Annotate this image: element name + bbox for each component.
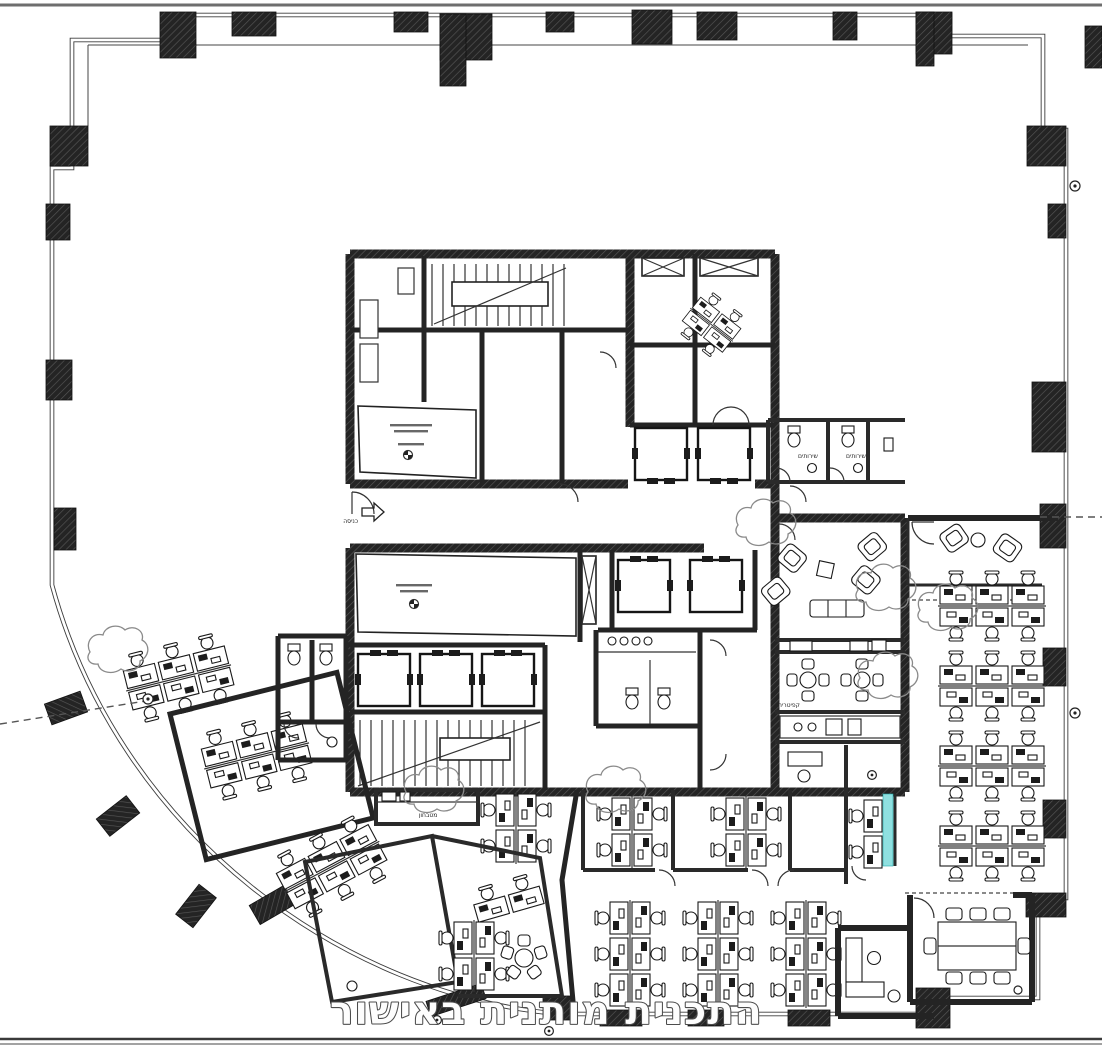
column-pier [916,988,950,1028]
desk-cluster [711,796,781,868]
column-pier [50,126,88,166]
service-shaft [582,556,596,624]
north-restrooms: שירותים שירותים [768,420,905,482]
conference-room [914,898,1030,994]
desk-cluster [597,796,667,868]
entrance-label: כניסה [343,518,358,525]
desk-cluster [470,872,544,922]
armchair [991,532,1023,564]
column-pier [788,1010,830,1026]
elevator [355,650,413,706]
cafeteria-label: קפיטריה [778,702,800,709]
cafeteria-table [787,659,829,701]
armchair [850,564,883,596]
armchair [759,575,792,607]
column-pier [46,360,72,400]
column-pier [546,12,574,32]
toilet-icon [626,688,638,709]
column-pier [916,12,934,66]
side-table [971,533,985,547]
elevator [417,650,475,706]
column-pier [96,796,139,837]
toilet-icon [288,644,300,665]
desk-cluster [849,800,882,868]
coffee-table [816,561,834,579]
floor-plan-drawing: כניסה שירותים שירותים [0,0,1102,1051]
electrical-room [360,268,414,382]
desk-cluster [938,571,1046,641]
amenity-column: קפיטריה [759,524,905,884]
storage-closets [642,258,758,276]
elevator-bank-west [355,650,537,706]
small-office-mid [788,752,822,782]
elevator [632,428,690,484]
column-pier [1032,382,1066,452]
column-pier [44,691,87,725]
armchair [776,542,809,574]
column-pier [1043,800,1066,838]
cafeteria-table [841,659,883,701]
elevator [695,428,753,484]
column-pier [160,12,196,58]
toilet-icon [320,644,332,665]
column-pier [440,14,466,86]
column-pier [1085,26,1102,68]
column-pier [46,204,70,240]
stairwell-2 [358,720,540,786]
sheet-border [0,5,1102,1044]
caption-block: התכנית מותנית באישור [330,989,763,1034]
manager-office-desks [674,287,749,362]
column-pier [1043,648,1066,686]
armchair [856,531,889,563]
open-office-right [938,571,1046,881]
column-pier [394,12,428,32]
sofa [810,600,864,617]
kitchen-counter [780,716,900,738]
desk-cluster [938,731,1046,801]
right-wing [905,518,1058,881]
level-marker [404,451,413,460]
desk-cluster [938,811,1046,881]
column-pier [833,12,857,40]
glass-office [849,794,895,880]
machine-room [358,406,476,478]
building-outline [52,15,1066,1014]
toilet-icon [658,688,670,709]
column-pier [54,508,76,550]
stairwell-1 [432,264,566,326]
caption-text: התכנית מותנית באישור [330,989,763,1034]
column-pier [232,12,276,36]
toilet-icon [788,426,800,447]
open-office-bottom [562,790,841,1012]
reception-lounge [912,522,1024,564]
column-pier [176,884,217,927]
floor-plan-sheet: כניסה שירותים שירותים [0,0,1102,1051]
level-marker [410,600,419,609]
glass-partition-highlight [883,794,893,866]
column-pier [632,10,672,44]
toilets-label: שירותים [846,453,866,460]
toilets-label: שירותים [798,453,818,460]
column-pier [1048,204,1066,238]
elevator [479,650,537,706]
core-restroom [598,637,696,724]
corner-office [846,938,900,1002]
column-pier [697,12,737,40]
elevator-bank-north [632,428,753,484]
elevator [615,556,673,612]
column-pier [1040,504,1066,548]
toilet-icon [842,426,854,447]
cafeteria: קפיטריה [778,659,883,709]
desk-cluster [771,900,841,1008]
revision-cloud [88,626,148,672]
armchair [938,522,970,554]
lobby-hall [356,554,576,636]
desk-cluster [938,651,1046,721]
private-offices [583,790,846,886]
column-pier [1027,126,1066,166]
elevator-bank-south [615,556,745,612]
elevator [687,556,745,612]
